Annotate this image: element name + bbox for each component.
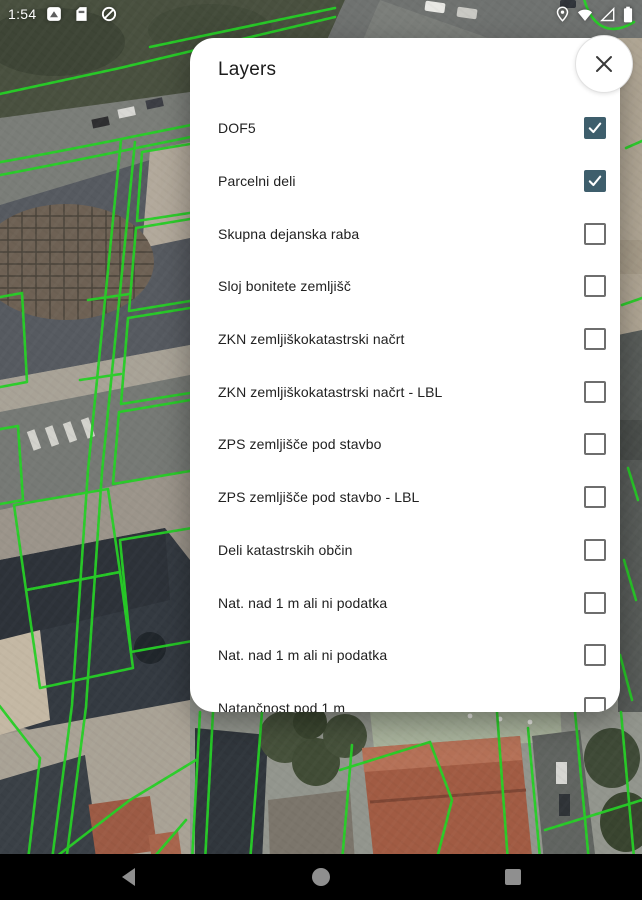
layer-row[interactable]: Natančnost pod 1 m — [190, 682, 620, 712]
layer-label: DOF5 — [218, 120, 584, 136]
layer-row[interactable]: Sloj bonitete zemljišč — [190, 260, 620, 313]
layers-dialog-surface: Layers DOF5 Parcelni deli Skupna dejansk… — [190, 38, 620, 712]
layer-checkbox[interactable] — [584, 223, 606, 245]
status-time: 1:54 — [8, 6, 36, 22]
layer-row[interactable]: ZKN zemljiškokatastrski načrt - LBL — [190, 365, 620, 418]
layer-checkbox[interactable] — [584, 644, 606, 666]
sim-card-icon — [74, 6, 89, 22]
layer-checkbox[interactable] — [584, 117, 606, 139]
layer-row[interactable]: ZPS zemljišče pod stavbo - LBL — [190, 471, 620, 524]
layer-row[interactable]: ZKN zemljiškokatastrski načrt — [190, 313, 620, 366]
layer-list: DOF5 Parcelni deli Skupna dejanska raba … — [190, 102, 620, 712]
check-icon — [587, 120, 603, 136]
layer-checkbox[interactable] — [584, 697, 606, 712]
screenshot-icon — [46, 6, 62, 22]
layer-checkbox[interactable] — [584, 170, 606, 192]
wifi-icon — [577, 7, 593, 22]
layer-label: Nat. nad 1 m ali ni podatka — [218, 595, 584, 611]
layers-dialog: Layers DOF5 Parcelni deli Skupna dejansk… — [190, 38, 620, 712]
layer-label: Deli katastrskih občin — [218, 542, 584, 558]
navigation-bar — [0, 854, 642, 900]
layer-checkbox[interactable] — [584, 539, 606, 561]
layer-label: ZPS zemljišče pod stavbo — [218, 436, 584, 452]
layer-checkbox[interactable] — [584, 275, 606, 297]
dialog-title: Layers — [190, 38, 620, 82]
data-saver-icon — [101, 6, 117, 22]
cell-signal-empty-icon — [600, 7, 615, 22]
layer-row[interactable]: Nat. nad 1 m ali ni podatka — [190, 576, 620, 629]
layer-row[interactable]: Nat. nad 1 m ali ni podatka — [190, 629, 620, 682]
layer-checkbox[interactable] — [584, 381, 606, 403]
layer-row[interactable]: Parcelni deli — [190, 155, 620, 208]
back-icon — [120, 867, 138, 887]
layer-row[interactable]: Skupna dejanska raba — [190, 207, 620, 260]
layer-checkbox[interactable] — [584, 328, 606, 350]
layer-checkbox[interactable] — [584, 486, 606, 508]
home-icon — [311, 867, 331, 887]
layer-row[interactable]: Deli katastrskih občin — [190, 524, 620, 577]
home-button[interactable] — [309, 865, 333, 889]
close-button[interactable] — [575, 35, 633, 93]
battery-icon — [622, 6, 634, 23]
layer-label: Skupna dejanska raba — [218, 226, 584, 242]
layer-checkbox[interactable] — [584, 433, 606, 455]
android-screen: 1:54 — [0, 0, 642, 900]
back-button[interactable] — [117, 865, 141, 889]
layer-label: Nat. nad 1 m ali ni podatka — [218, 647, 584, 663]
recents-icon — [504, 868, 522, 886]
layer-label: ZPS zemljišče pod stavbo - LBL — [218, 489, 584, 505]
layer-label: ZKN zemljiškokatastrski načrt — [218, 331, 584, 347]
check-icon — [587, 173, 603, 189]
status-bar: 1:54 — [0, 0, 642, 28]
layer-row[interactable]: ZPS zemljišče pod stavbo — [190, 418, 620, 471]
close-icon — [593, 53, 615, 75]
layer-label: Sloj bonitete zemljišč — [218, 278, 584, 294]
location-icon — [555, 6, 570, 22]
layer-label: Parcelni deli — [218, 173, 584, 189]
layer-label: ZKN zemljiškokatastrski načrt - LBL — [218, 384, 584, 400]
layer-row[interactable]: DOF5 — [190, 102, 620, 155]
layer-label: Natančnost pod 1 m — [218, 700, 584, 712]
layer-checkbox[interactable] — [584, 592, 606, 614]
recents-button[interactable] — [501, 865, 525, 889]
